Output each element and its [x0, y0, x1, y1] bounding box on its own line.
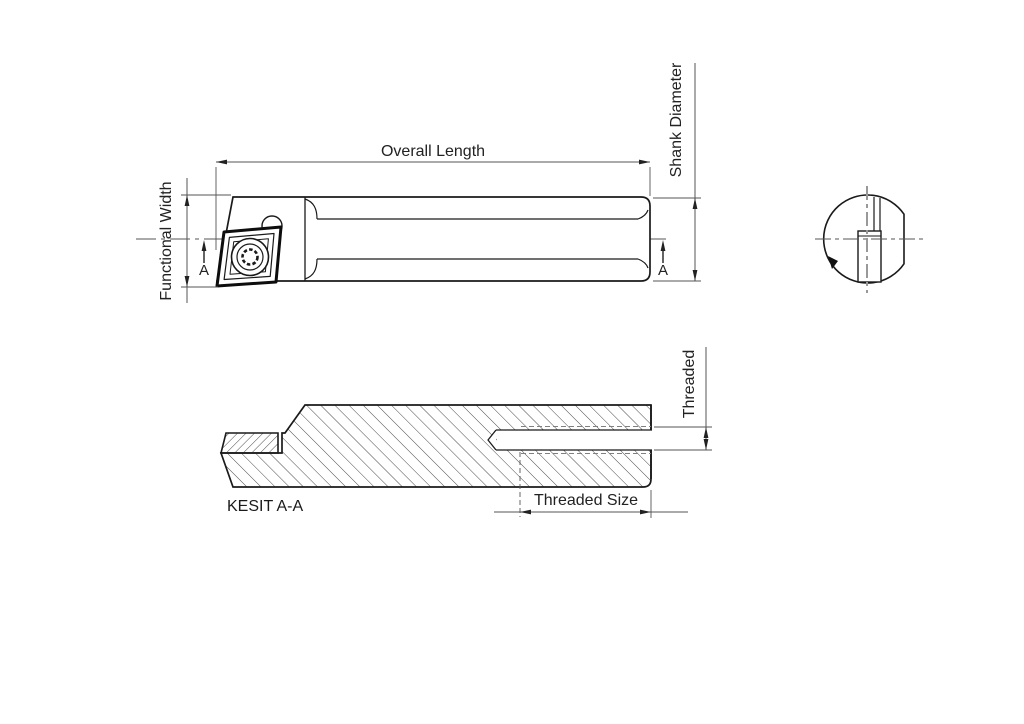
section-marker-letter: A: [658, 262, 668, 279]
arrowhead-top: [693, 198, 698, 209]
arrowhead-top: [185, 195, 190, 206]
section-view: Threaded Threaded Size KESIT A-A: [221, 347, 712, 518]
overall-length-label: Overall Length: [381, 143, 485, 160]
section-insert-piece: [221, 433, 278, 453]
section-marker-left: A: [199, 240, 209, 279]
section-view-title: KESIT A-A: [227, 498, 304, 515]
end-view: [815, 186, 925, 293]
shank-diameter-label: Shank Diameter: [668, 62, 685, 177]
drawing-canvas: Overall Length Functional Width Shank Di…: [0, 0, 1024, 724]
arrowhead-left: [216, 160, 227, 165]
technical-drawing: Overall Length Functional Width Shank Di…: [0, 0, 1024, 724]
functional-width-label: Functional Width: [158, 181, 175, 300]
section-marker-right: A: [658, 240, 668, 279]
section-arrow-icon: [202, 240, 207, 251]
cutting-insert: [217, 227, 281, 286]
arrowhead-bottom: [185, 276, 190, 287]
threaded-label: Threaded: [681, 350, 698, 419]
arrowhead-bottom: [693, 270, 698, 281]
arrowhead-top: [704, 427, 709, 438]
arrowhead-right: [639, 160, 650, 165]
arrowhead-bottom: [704, 439, 709, 450]
side-view: Overall Length Functional Width Shank Di…: [136, 62, 701, 303]
shank-outline: [217, 197, 650, 281]
threaded-size-label: Threaded Size: [534, 492, 638, 509]
arrowhead-right: [640, 510, 651, 515]
section-marker-letter: A: [199, 262, 209, 279]
arrowhead-left: [520, 510, 531, 515]
threaded-hole: [497, 430, 654, 451]
section-arrow-icon: [661, 240, 666, 251]
